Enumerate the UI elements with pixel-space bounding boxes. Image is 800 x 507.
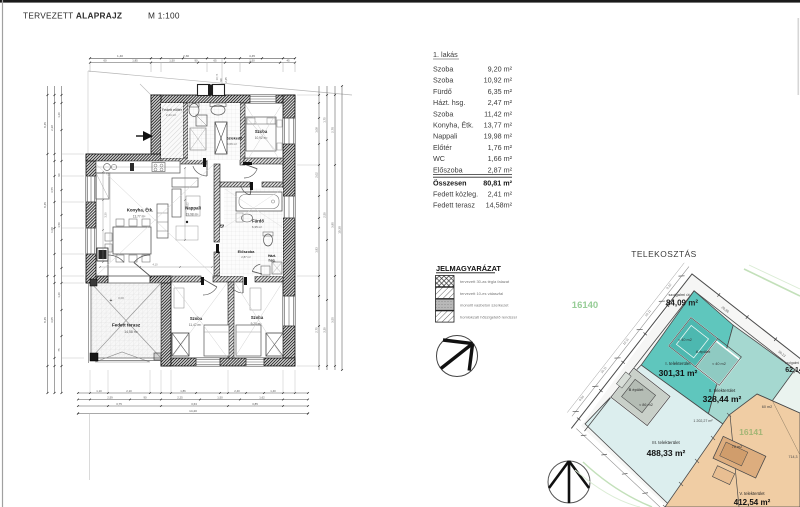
svg-text:2,50: 2,50 [249,58,255,62]
svg-text:4,10: 4,10 [152,263,158,267]
svg-text:3,05: 3,05 [50,317,54,323]
svg-text:2,02: 2,02 [315,172,319,178]
svg-text:4,45: 4,45 [249,54,255,58]
svg-text:A épület: A épület [696,349,711,354]
svg-text:Szoba: Szoba [251,315,264,320]
svg-text:4,66 m²: 4,66 m² [227,142,237,146]
svg-text:szolgalmi út: szolgalmi út [668,292,690,297]
svg-text:1,00: 1,00 [50,227,54,233]
svg-text:≈ 40 m2: ≈ 40 m2 [712,362,726,366]
svg-text:2,50: 2,50 [323,212,327,218]
svg-text:Előtér: Előtér [433,143,452,152]
svg-text:80,81 m²: 80,81 m² [483,179,512,188]
svg-text:tervezett 10-es válaszfal: tervezett 10-es válaszfal [460,291,503,296]
svg-text:1,08: 1,08 [315,127,319,133]
svg-text:2,25: 2,25 [177,396,183,400]
svg-text:1,10: 1,10 [96,389,102,393]
svg-text:3,30: 3,30 [104,212,108,218]
svg-text:16140: 16140 [572,300,598,311]
svg-text:2,87 m²: 2,87 m² [488,165,513,174]
svg-text:Fedett előtér: Fedett előtér [162,108,183,112]
svg-text:Fedett közleg.: Fedett közleg. [433,190,478,199]
svg-text:14,58m²: 14,58m² [486,201,513,210]
svg-text:+: + [110,298,113,304]
svg-text:38,75: 38,75 [215,73,219,80]
svg-text:1,66 m²: 1,66 m² [488,154,513,163]
svg-text:WC: WC [433,154,445,163]
svg-text:301,31 m²: 301,31 m² [659,368,698,378]
svg-text:2,47 m²: 2,47 m² [488,98,513,107]
svg-text:Előszoba: Előszoba [238,250,256,254]
svg-text:Házt. hsg.: Házt. hsg. [433,98,465,107]
svg-text:3,63: 3,63 [191,402,197,406]
svg-text:90: 90 [143,396,147,400]
svg-text:2,70: 2,70 [331,127,335,133]
svg-text:2,40: 2,40 [234,389,240,393]
svg-text:Konyha, Étk.: Konyha, Étk. [433,121,474,130]
svg-text:III. telekterület: III. telekterület [652,440,680,445]
svg-text:≈ 86 m2: ≈ 86 m2 [639,403,653,407]
svg-text:3,75: 3,75 [116,402,122,406]
svg-text:Szoba: Szoba [433,109,453,118]
svg-text:3,85: 3,85 [252,402,258,406]
svg-text:monolit vasbeton szerkezet: monolit vasbeton szerkezet [460,303,509,308]
svg-text:1,75: 1,75 [323,117,327,123]
svg-text:Szoba: Szoba [433,76,453,85]
svg-text:2,25: 2,25 [224,77,228,83]
svg-text:90: 90 [57,173,61,177]
svg-text:Előszoba: Előszoba [433,165,463,174]
svg-text:Fedett terasz: Fedett terasz [112,323,141,328]
svg-text:Szoba: Szoba [433,65,453,74]
svg-text:homlokzati hőszigetelő rendsze: homlokzati hőszigetelő rendszer [460,314,518,319]
svg-text:2,10: 2,10 [126,389,132,393]
svg-text:1,93: 1,93 [315,247,319,253]
svg-text:1,20: 1,20 [57,112,61,118]
svg-text:1,62: 1,62 [259,396,265,400]
svg-text:13,77 m²: 13,77 m² [133,215,146,219]
svg-text:14,40: 14,40 [189,409,197,413]
svg-text:10,30: 10,30 [338,226,342,234]
svg-text:10,92 m²: 10,92 m² [484,76,513,85]
svg-text:2,30: 2,30 [183,54,189,58]
svg-text:Összesen: Összesen [433,179,467,188]
svg-text:488,33 m²: 488,33 m² [647,448,686,458]
svg-text:I. telekterület: I. telekterület [665,361,691,366]
svg-text:TELEKOSZTÁS: TELEKOSZTÁS [631,249,697,259]
svg-text:8,45: 8,45 [43,202,47,208]
svg-text:≈ 40 m2: ≈ 40 m2 [678,338,692,342]
svg-text:8,45: 8,45 [43,317,47,323]
svg-text:60: 60 [103,58,107,62]
svg-text:JELMAGYARÁZAT: JELMAGYARÁZAT [436,264,501,273]
svg-text:2,41 m²: 2,41 m² [488,190,513,199]
svg-text:84,09 m²: 84,09 m² [666,299,698,308]
svg-text:19,98 m²: 19,98 m² [186,213,199,217]
svg-text:M 1:100: M 1:100 [148,11,180,21]
svg-text:3,55: 3,55 [50,187,54,193]
svg-text:Konyha, Étk.: Konyha, Étk. [127,208,154,213]
svg-text:1,85: 1,85 [132,58,138,62]
svg-text:90: 90 [219,78,223,82]
svg-text:Fürdő: Fürdő [252,219,264,224]
svg-text:1. lakás: 1. lakás [433,50,458,59]
svg-text:412,54 m²: 412,54 m² [734,498,771,507]
svg-text:16141: 16141 [739,427,763,437]
svg-text:62,14: 62,14 [785,367,800,374]
svg-text:II. telekterület: II. telekterület [709,388,736,393]
svg-text:8,45: 8,45 [43,122,47,128]
svg-text:2,59: 2,59 [107,396,113,400]
svg-text:9,20 m²: 9,20 m² [488,65,513,74]
svg-text:Nappali: Nappali [433,132,458,141]
svg-text:1,50: 1,50 [217,396,223,400]
svg-text:V. telekterület: V. telekterület [739,491,765,496]
svg-text:6,35 m²: 6,35 m² [252,225,262,229]
svg-text:Fedett terasz: Fedett terasz [433,201,475,210]
svg-text:szolgalmi: szolgalmi [785,361,799,365]
svg-text:65: 65 [213,58,217,62]
svg-text:328,44 m²: 328,44 m² [703,394,742,404]
svg-text:2,62: 2,62 [186,202,190,208]
svg-text:3,30: 3,30 [323,327,327,333]
svg-text:6,35 m²: 6,35 m² [488,87,513,96]
svg-text:1,86: 1,86 [180,389,186,393]
svg-text:2,28: 2,28 [50,125,54,131]
svg-text:1,20: 1,20 [57,292,61,298]
svg-text:19,98 m²: 19,98 m² [484,132,513,141]
svg-text:3,55: 3,55 [331,317,335,323]
svg-text:60 m2: 60 m2 [762,405,773,409]
svg-text:1,40: 1,40 [270,389,276,393]
svg-text:75: 75 [57,348,61,352]
svg-text:14,58 m²: 14,58 m² [124,330,138,334]
svg-text:TERVEZETT ALAPRAJZ: TERVEZETT ALAPRAJZ [23,11,122,21]
svg-text:Fürdő: Fürdő [433,87,452,96]
svg-text:2,75: 2,75 [315,327,319,333]
svg-text:1,40: 1,40 [117,54,123,58]
svg-text:1,50: 1,50 [169,58,175,62]
svg-text:90: 90 [194,58,198,62]
svg-text:tervezett 30-as tégla falazat: tervezett 30-as tégla falazat [460,279,510,284]
svg-text:Házt.: Házt. [268,254,276,258]
svg-text:1 202,27 m²: 1 202,27 m² [693,419,713,423]
svg-text:2,87 m²: 2,87 m² [241,255,251,259]
svg-text:11,42 m²: 11,42 m² [484,109,512,118]
svg-text:0,00: 0,00 [118,296,124,300]
svg-text:714,3: 714,3 [789,455,798,459]
svg-text:1,76 m²: 1,76 m² [488,143,513,152]
svg-text:70 m2: 70 m2 [732,445,743,449]
svg-text:1,50: 1,50 [57,222,61,228]
svg-text:3,85: 3,85 [331,222,335,228]
svg-text:2,41 m²: 2,41 m² [166,113,176,117]
svg-text:45: 45 [286,58,290,62]
svg-text:B épület: B épület [629,387,645,392]
svg-text:13,77 m²: 13,77 m² [484,121,513,130]
